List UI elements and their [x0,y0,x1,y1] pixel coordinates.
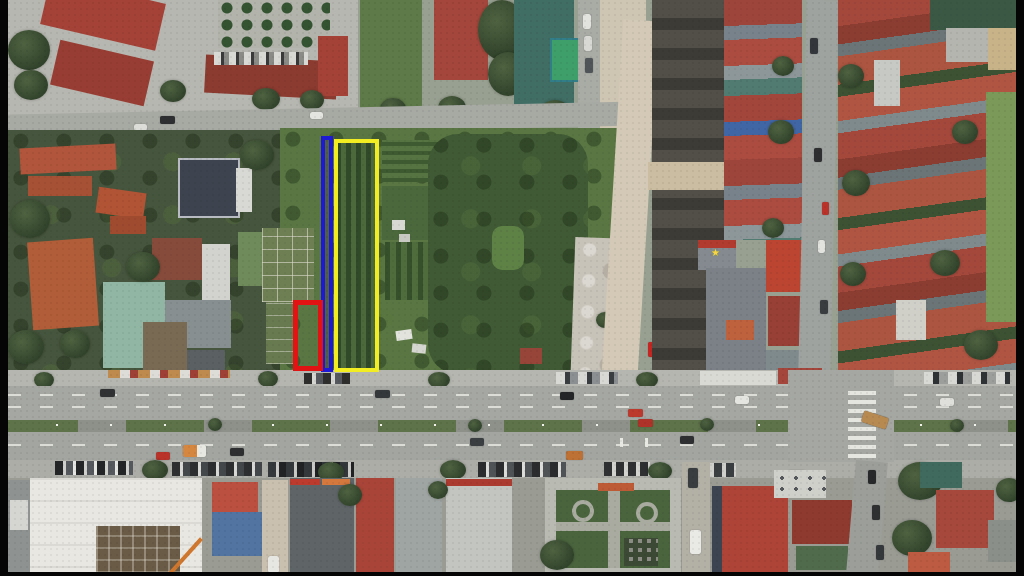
pavilion-roof [598,483,634,491]
tree-canopy [842,170,870,196]
car [810,38,818,54]
park-circle [572,500,594,522]
street-tree [258,371,278,387]
median-tree [700,418,714,431]
building-roof [712,486,722,576]
parked-car-row [304,373,350,384]
building-roof [318,36,348,96]
tree-canopy [772,56,794,76]
red-car [628,409,643,417]
tree-canopy [540,540,574,570]
dirt-patch [988,28,1016,70]
parked-car-row [55,461,133,475]
aerial-drone-photo: ★ [0,0,1024,576]
median-tree [950,419,964,432]
flag-roof: ★ [698,240,736,270]
tree-canopy [338,484,362,506]
tree-canopy [60,330,90,358]
tree-canopy [126,252,160,282]
green-field-strip [986,92,1016,322]
allotment-grid [266,302,294,364]
car [310,112,323,119]
tree-canopy [14,70,48,100]
frame-bar-right [1016,0,1024,576]
building-roof [202,244,230,302]
vertical-road [797,0,839,420]
tree-canopy [8,30,50,70]
building-roof [766,240,804,292]
car [876,545,884,560]
tree-canopy [252,88,280,110]
car [818,240,825,253]
red-car [822,202,829,215]
courtyard [143,322,187,370]
road-arrow [620,438,623,447]
building-roof [908,552,950,574]
car [820,300,828,314]
tree-canopy [964,330,998,360]
tree-canopy [930,250,960,276]
park-path-h [556,522,670,531]
parked-car-row [172,462,262,476]
tree-canopy [840,262,866,286]
street-tree [440,460,466,480]
building-roof [792,500,852,544]
temple-roof [27,238,99,330]
mansion-roof [178,158,240,218]
frame-bar-left [0,0,8,576]
building-roof [28,176,92,196]
building-roof [700,371,776,385]
street-tree [142,460,168,480]
building-roof [19,144,116,175]
car [872,505,880,520]
sign-strip [290,479,320,485]
plot-annotation-red [293,300,323,371]
big-red-roof [722,486,788,576]
roof-structure [726,320,754,340]
rooftop-terrace [774,470,826,498]
building-roof [896,300,926,340]
tarp [412,343,427,353]
median-tree [208,418,222,431]
vietnam-flag-star-icon: ★ [711,248,720,258]
tree-canopy [762,218,784,238]
tree-canopy [428,481,448,499]
tree-canopy [10,200,50,238]
car [100,389,115,397]
building-roof [796,546,848,570]
car [735,396,749,404]
truck [566,451,583,460]
tree-canopy [8,330,44,364]
truck [183,445,206,457]
parked-car [585,58,593,73]
parked-car-row [604,462,650,476]
building-roof [988,520,1016,562]
tree-canopy [838,64,864,88]
median-tree [468,419,482,432]
allotment-grid [262,228,314,302]
car [560,392,574,400]
building-roof [930,0,1016,30]
building-roof [446,478,512,576]
building-roof [920,462,962,488]
truck [688,468,698,488]
tree-canopy [160,80,186,102]
parked-car-row [556,372,618,384]
red-car [156,452,170,460]
storefront-awnings [108,370,230,378]
plot-annotation-yellow [334,139,379,372]
palm-courtyard [218,0,330,48]
dirt-crossing [648,162,730,190]
car [814,148,822,162]
car [230,448,244,456]
van [268,556,279,573]
frame-bar-bottom [0,572,1024,576]
blue-roof [212,512,262,556]
building-roof [110,216,146,234]
parked-car-row [214,52,308,65]
car [940,398,954,406]
building-roof [212,482,258,512]
building-roof [152,238,202,280]
parked-car [584,36,592,51]
car [680,436,694,444]
red-car [638,419,653,427]
car [375,390,390,398]
building-roof [10,500,28,530]
building-roof [874,60,900,106]
sign-strip [446,479,512,486]
tree-canopy [892,520,932,556]
tree-canopy [300,90,324,110]
car [868,470,876,484]
rowhouse-roofs [724,0,802,240]
car [160,116,175,124]
parked-car [583,14,591,29]
tree-canopy [952,120,978,144]
paver-grid [624,538,658,566]
shed-roof [392,220,405,230]
tree-canopy [240,140,274,170]
parked-car-row [924,372,1010,384]
building-roof [936,490,994,548]
hut-roof [520,348,542,364]
white-truck [690,530,701,554]
building-roof [236,168,252,212]
banana-grove [492,226,524,270]
sports-court [550,38,580,82]
shed-roof [399,234,410,242]
parked-car-row [478,462,566,477]
construction-patch [96,526,180,573]
park-circle [636,502,658,524]
tree-canopy [768,120,794,144]
road-arrow [645,438,648,447]
car [470,438,484,446]
